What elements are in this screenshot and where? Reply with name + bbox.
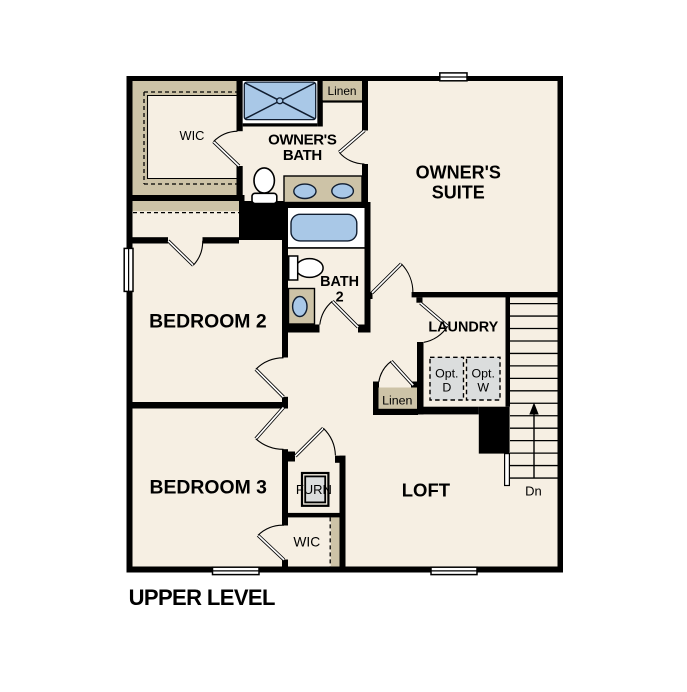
svg-text:LOFT: LOFT [402,479,451,500]
svg-text:OWNER'S: OWNER'S [268,132,337,149]
svg-text:D: D [442,380,451,394]
svg-text:FURN: FURN [296,482,332,497]
svg-text:Dn: Dn [525,483,542,498]
svg-text:SUITE: SUITE [432,182,485,202]
svg-text:BATH: BATH [320,274,359,290]
svg-text:Linen: Linen [327,84,356,98]
svg-text:UPPER LEVEL: UPPER LEVEL [129,585,275,610]
svg-text:WIC: WIC [180,128,205,143]
svg-text:2: 2 [336,289,344,305]
svg-text:LAUNDRY: LAUNDRY [428,319,498,335]
svg-text:Opt.: Opt. [435,366,458,380]
svg-text:Linen: Linen [382,393,412,407]
svg-text:OWNER'S: OWNER'S [416,162,501,182]
svg-text:BATH: BATH [283,147,322,164]
svg-text:BEDROOM 3: BEDROOM 3 [149,477,267,499]
svg-text:BEDROOM 2: BEDROOM 2 [149,310,266,332]
svg-text:Opt.: Opt. [471,366,494,380]
svg-text:W: W [477,380,489,394]
svg-text:WIC: WIC [293,534,320,549]
